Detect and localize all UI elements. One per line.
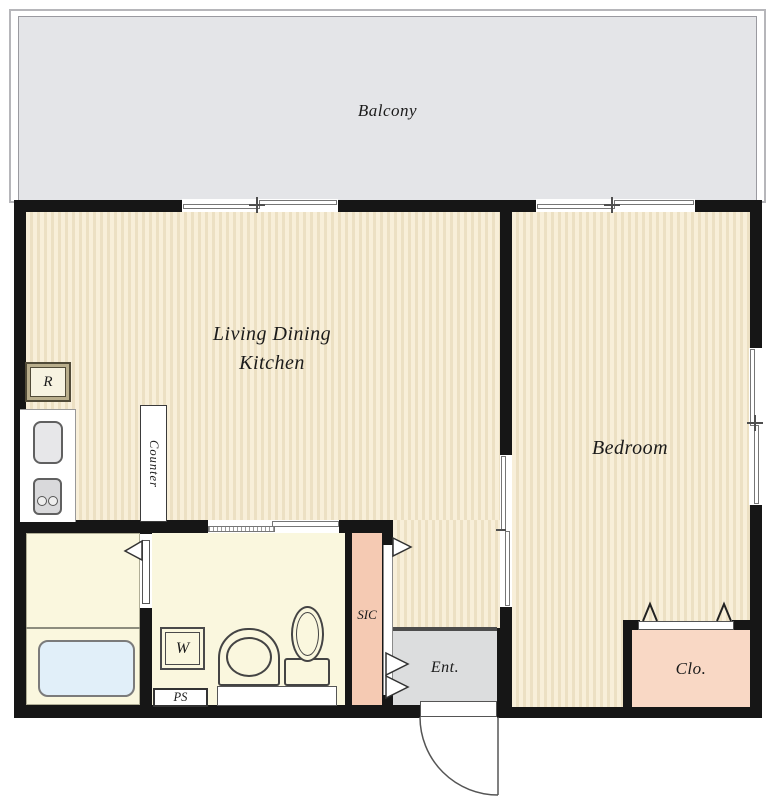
bathroom-floor — [26, 533, 140, 705]
floor-plan: Balcony Ent. SIC W PS Clo. — [0, 0, 776, 800]
vanity-counter — [217, 686, 337, 706]
bedroom-window-right-pane-bottom — [754, 425, 759, 504]
kitchen-stove — [33, 478, 62, 515]
balcony-slab: Balcony — [18, 16, 757, 201]
entrance-label: Ent. — [431, 659, 459, 677]
ldk-bedroom-door-panel-2 — [505, 531, 510, 606]
toilet-bowl-rim — [296, 612, 319, 656]
bathroom-divider-line — [26, 627, 140, 629]
ldk-window-tick-h — [249, 204, 265, 206]
shoe-closet-door-track — [383, 545, 393, 695]
bedroom-window-top-pane-right — [614, 200, 694, 205]
stove-burner-right — [48, 496, 58, 506]
kitchen-unit — [20, 409, 76, 522]
closet-wall-top-right — [732, 620, 750, 630]
stove-burner-left — [37, 496, 47, 506]
ldk-bedroom-door-panel-1 — [501, 456, 506, 530]
sink-basin — [226, 637, 272, 677]
ldk-label-line2: Kitchen — [150, 349, 394, 378]
counter-label: Counter — [146, 440, 161, 488]
ldk-bedroom-sliding-door — [500, 455, 512, 607]
ldk-bedroom-door-tick — [496, 529, 506, 531]
balcony-label: Balcony — [19, 101, 756, 121]
refrigerator-inner: R — [30, 367, 66, 397]
refrigerator-label: R — [43, 374, 52, 391]
bedroom-window-right-tick-v — [754, 415, 756, 431]
washroom-door-panel-lower — [208, 526, 275, 532]
pipe-space-box: PS — [153, 688, 208, 707]
kitchen-sink — [33, 421, 63, 464]
ldk-window-pane-right — [259, 200, 337, 205]
entrance-door-swing-arc — [420, 717, 498, 795]
kitchen-counter: Counter — [140, 405, 167, 522]
closet-wall-left — [623, 620, 632, 718]
bathroom-door-leaf — [142, 540, 150, 604]
shoe-closet-floor: SIC — [352, 533, 382, 705]
bathtub — [38, 640, 135, 697]
washroom-sliding-door — [208, 520, 339, 533]
entrance-door-leaf — [420, 701, 497, 717]
bedroom-window-top-tick-h — [604, 204, 620, 206]
closet-label: Clo. — [676, 659, 707, 679]
hall-floor — [393, 520, 500, 628]
entrance-floor: Ent. — [393, 631, 497, 705]
toilet-bowl — [291, 606, 324, 662]
ldk-label-line1: Living Dining — [150, 320, 394, 349]
ldk-label: Living Dining Kitchen — [150, 320, 394, 378]
washing-machine-inner: W — [165, 632, 200, 665]
closet-floor: Clo. — [632, 630, 750, 707]
toilet-base — [284, 658, 330, 686]
bedroom-label: Bedroom — [540, 437, 720, 460]
closet-door — [638, 621, 734, 630]
washing-machine-box: W — [160, 627, 205, 670]
shoe-closet-label: SIC — [352, 607, 382, 623]
washing-machine-label: W — [176, 640, 189, 658]
washroom-door-panel-upper — [272, 521, 339, 527]
pipe-space-label: PS — [174, 690, 188, 705]
refrigerator-box: R — [25, 362, 71, 402]
